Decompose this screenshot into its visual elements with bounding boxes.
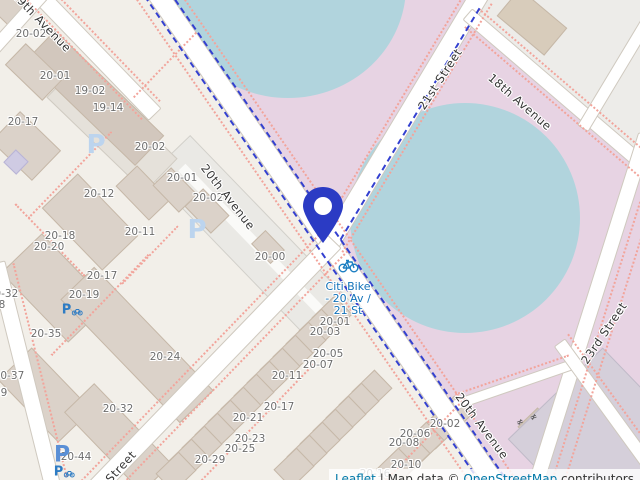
bicycle-icon — [338, 258, 359, 273]
house-number: 20-19 — [69, 289, 100, 301]
house-number: 20-37 — [0, 370, 24, 382]
attribution-text: | Map data © — [376, 472, 463, 480]
house-number: 20-07 — [303, 359, 334, 371]
house-number: 19-02 — [75, 85, 106, 97]
street-label: 20th Street — [0, 331, 1, 395]
house-number: 20-02 — [430, 418, 461, 430]
bicycle-parking-icon: P — [62, 303, 83, 318]
house-number: 20-35 — [31, 328, 62, 340]
house-number: 20-00 — [255, 251, 286, 263]
attribution-suffix: contributors — [557, 472, 634, 480]
leaflet-link[interactable]: Leaflet — [335, 472, 376, 480]
house-number: 20-12 — [84, 188, 115, 200]
house-number: 20-39 — [0, 387, 7, 399]
bicycle-parking-icon: P — [54, 465, 75, 480]
house-number: 20-21 — [233, 412, 264, 424]
house-number: 20-17 — [8, 116, 39, 128]
house-number: 20-17 — [264, 401, 295, 413]
house-number: 20-17 — [87, 270, 118, 282]
house-number: 20-11 — [125, 226, 156, 238]
house-number: 20-01 — [40, 70, 71, 82]
map-canvas[interactable]: 19th Avenue20th Avenue20th Avenue21st St… — [0, 0, 640, 480]
house-number: 20-01 — [167, 172, 198, 184]
citibike-station-label[interactable]: Citi Bike - 20 Av / 21 St — [325, 281, 371, 317]
house-number: 20-08 — [389, 437, 420, 449]
house-number: 20-38 — [0, 299, 5, 311]
parking-icon: P — [187, 215, 206, 245]
house-number: 20-11 — [272, 370, 303, 382]
house-number: 20-24 — [150, 351, 181, 363]
house-number: 20-29 — [195, 454, 226, 466]
parking-icon: P — [86, 130, 105, 160]
location-marker[interactable] — [299, 185, 347, 245]
house-number: 20-25 — [225, 443, 256, 455]
house-number: 19-14 — [93, 102, 124, 114]
house-number: 20-32 — [103, 403, 134, 415]
house-number: 20-20 — [34, 241, 65, 253]
house-number: 20-03 — [310, 326, 341, 338]
attribution-bar: Leaflet | Map data © OpenStreetMap contr… — [329, 469, 640, 480]
osm-link[interactable]: OpenStreetMap — [463, 472, 557, 480]
house-number: 20-02 — [135, 141, 166, 153]
